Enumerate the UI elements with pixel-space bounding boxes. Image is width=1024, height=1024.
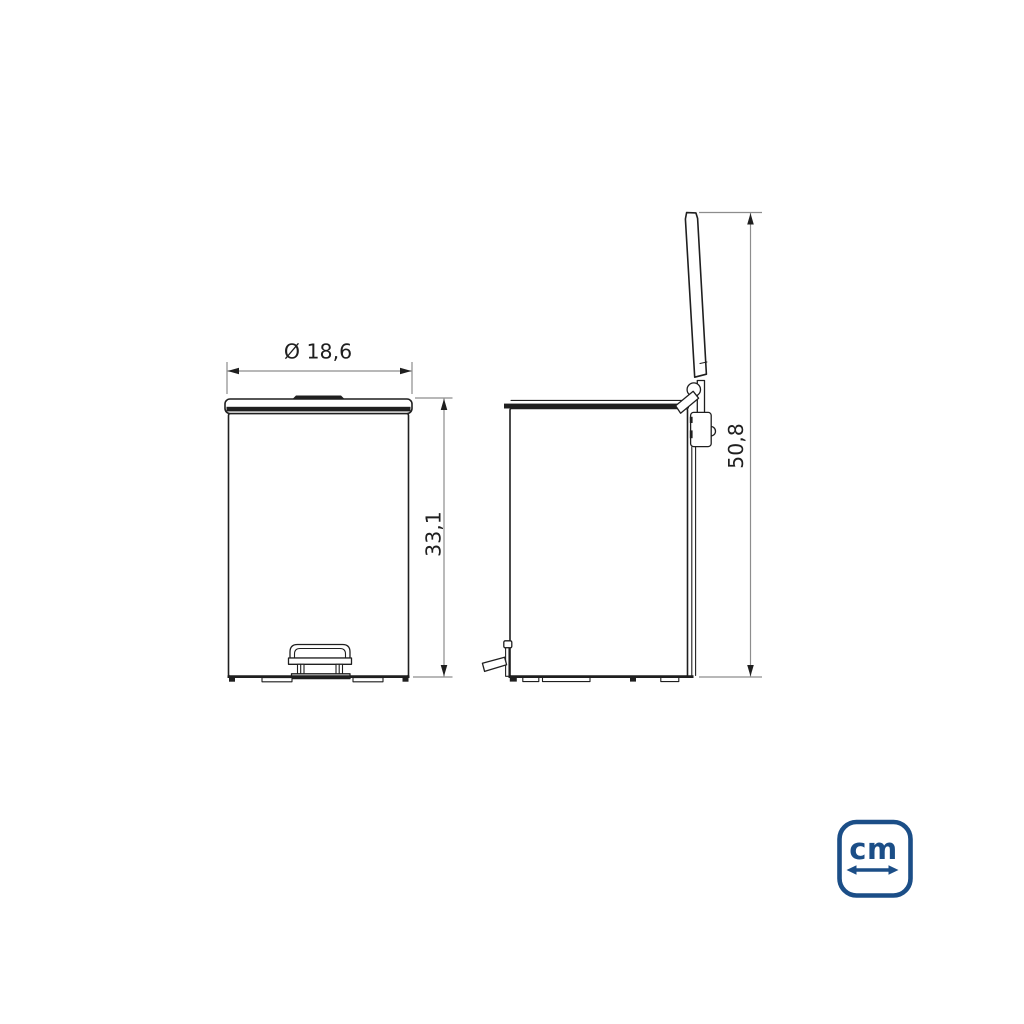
side-foot-pad-1: [523, 677, 539, 681]
front-width-dimension-label: Ø 18,6: [284, 340, 352, 364]
front-lid-rim-band: [227, 407, 411, 412]
front-pedal-band: [289, 658, 352, 664]
dim-arrow-up-icon: [441, 399, 448, 410]
front-body: [229, 414, 409, 677]
front-foot-pad-right: [353, 678, 383, 682]
side-feet: [510, 677, 679, 681]
front-foot-pad-left: [262, 678, 292, 682]
technical-drawing-canvas: Ø 18,6 33,1: [0, 0, 1024, 1024]
side-pedal: [482, 657, 506, 671]
front-foot-nub-left: [229, 678, 235, 682]
side-foot-pad-2: [543, 677, 591, 681]
side-lid-open: [685, 213, 706, 378]
front-height-dimension-label: 33,1: [422, 511, 446, 557]
side-foot-nub-front: [510, 678, 517, 682]
side-view: [482, 213, 715, 682]
side-body: [510, 409, 688, 677]
dim-arrow-left-icon: [228, 368, 240, 375]
front-view: [225, 396, 412, 682]
front-foot-nub-right: [403, 678, 409, 682]
side-height-dimension-label: 50,8: [724, 423, 748, 469]
side-pedal-rod: [692, 447, 696, 676]
technical-drawing-page: Ø 18,6 33,1: [0, 0, 1024, 1024]
side-foot-pad-rear: [661, 677, 679, 681]
front-pedal: [289, 645, 352, 679]
unit-badge: cm: [840, 822, 911, 896]
unit-badge-label: cm: [849, 832, 897, 866]
side-foot-nub-mid: [630, 678, 636, 682]
dim-arrow-right-icon: [400, 368, 412, 375]
side-pedal-knob: [504, 641, 512, 648]
front-height-dimension: 33,1: [413, 398, 453, 677]
front-width-dimension: Ø 18,6: [227, 340, 412, 395]
dim-arrow-down-icon: [747, 665, 754, 676]
front-pedal-shell: [290, 645, 350, 659]
front-lid-handle-tab: [292, 396, 345, 400]
dim-arrow-up-icon: [747, 213, 754, 224]
dim-arrow-down-icon: [441, 665, 448, 676]
side-rim-band: [504, 404, 689, 409]
side-hinge-bracket: [691, 412, 712, 446]
